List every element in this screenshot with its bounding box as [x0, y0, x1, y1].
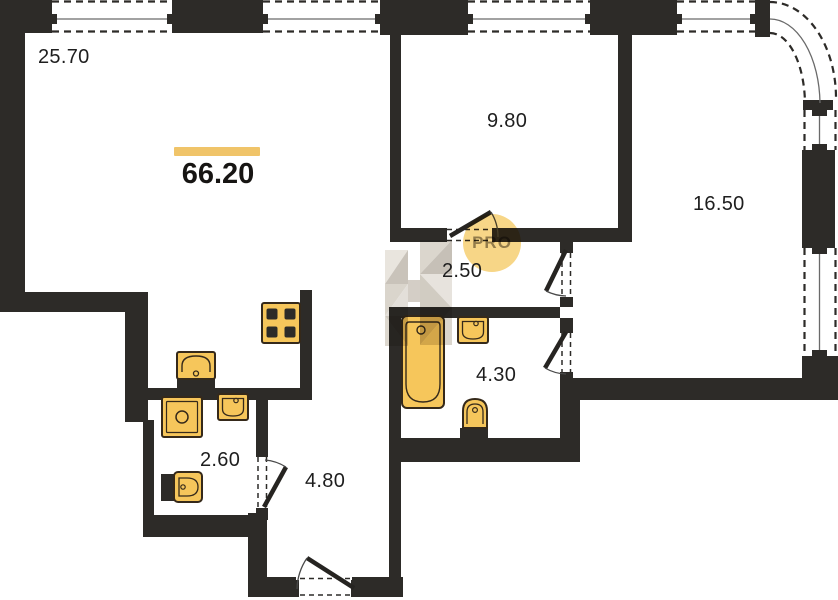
wall	[380, 0, 468, 35]
wall	[390, 35, 401, 230]
window-tick	[585, 14, 591, 24]
door-swing-arc	[546, 291, 566, 296]
door-swing-arc	[265, 460, 286, 467]
room-label-bedroom: 9.80	[487, 111, 527, 131]
toilet-2-icon	[460, 399, 488, 441]
bathroom-sink-icon	[458, 317, 488, 343]
room-label-wc-laundry: 2.60	[200, 450, 240, 470]
window-tick	[812, 350, 827, 356]
wall	[0, 0, 25, 312]
wall	[25, 292, 148, 312]
washing-machine-icon	[162, 397, 202, 437]
curved-corner-window	[770, 2, 836, 105]
window-tick	[51, 14, 57, 24]
wall	[618, 35, 632, 235]
stove-burner	[267, 327, 278, 338]
wall	[248, 513, 267, 583]
washer-body	[162, 397, 202, 437]
floor-plan: PRO 66.20 25.70 9.80 16.50 2.50 4.30 2.6…	[0, 0, 838, 600]
window-tick	[812, 144, 827, 150]
door-leaf	[545, 332, 566, 368]
window-tick	[167, 14, 173, 24]
watermark-pro-label: PRO	[464, 234, 520, 251]
wall	[389, 307, 401, 597]
wall	[143, 515, 257, 537]
stove-icon	[262, 303, 300, 343]
wall	[300, 290, 312, 400]
wall	[802, 356, 838, 400]
window-tick	[812, 248, 827, 254]
room-label-entry-hall: 4.80	[305, 471, 345, 491]
door-leaf	[546, 250, 566, 291]
wc-sink-icon	[218, 394, 248, 420]
wall	[503, 228, 632, 242]
wall	[803, 100, 833, 110]
stove-burner	[267, 309, 278, 320]
wall	[256, 508, 268, 520]
room-label-bathroom: 4.30	[476, 365, 516, 385]
window-tick	[812, 110, 827, 116]
door-leaf	[307, 558, 354, 588]
stove-burner	[285, 327, 296, 338]
window-tick	[262, 14, 268, 24]
toilet-tank	[161, 474, 174, 501]
window-dash-line	[770, 33, 805, 105]
total-area-label: 66.20	[170, 160, 266, 189]
room-label-inner-hall: 2.50	[442, 261, 482, 281]
watermark-h-icon	[383, 238, 455, 348]
wall	[401, 438, 580, 462]
kitchen-sink-icon	[177, 352, 215, 391]
stove-burner	[285, 309, 296, 320]
total-area-underline	[174, 147, 260, 156]
wall	[755, 0, 770, 37]
toilet-2-tank	[460, 428, 488, 441]
window-glazing-line	[770, 19, 820, 103]
room-label-living-room: 25.70	[38, 47, 90, 67]
window-tick	[750, 14, 756, 24]
window-tick	[676, 14, 682, 24]
wall	[560, 297, 573, 307]
toilet-icon	[161, 472, 202, 502]
window-tick	[375, 14, 381, 24]
wall	[172, 0, 263, 33]
room-label-bedroom-2: 16.50	[693, 194, 745, 214]
wall	[590, 0, 677, 35]
wall	[256, 398, 268, 457]
door-leaf	[264, 467, 286, 507]
wall	[560, 318, 573, 333]
wall	[125, 312, 148, 422]
wall	[802, 150, 835, 248]
window-tick	[467, 14, 473, 24]
wall	[563, 378, 838, 400]
wall	[248, 577, 296, 597]
